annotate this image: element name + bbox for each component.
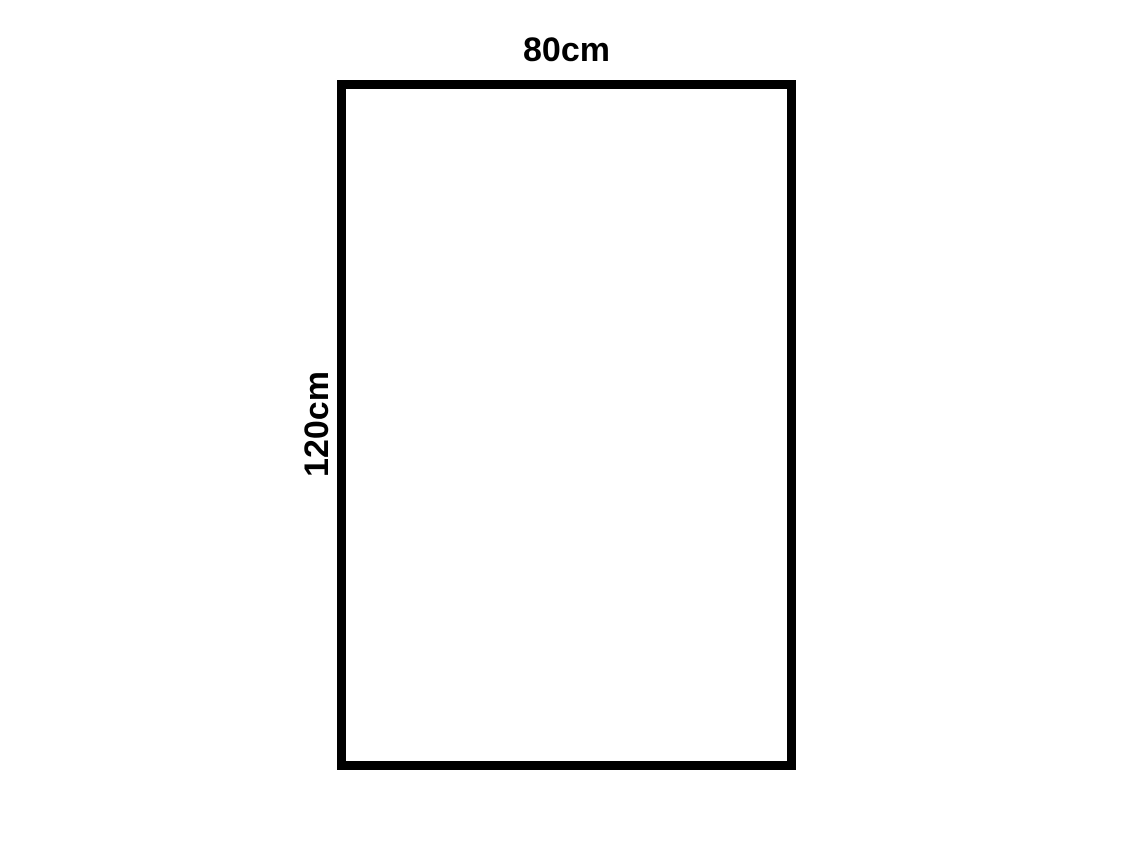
diagram-canvas: 80cm 120cm bbox=[0, 0, 1134, 850]
height-dimension-label: 120cm bbox=[297, 344, 337, 504]
width-dimension-label: 80cm bbox=[337, 30, 796, 70]
dimension-rectangle bbox=[337, 80, 796, 770]
